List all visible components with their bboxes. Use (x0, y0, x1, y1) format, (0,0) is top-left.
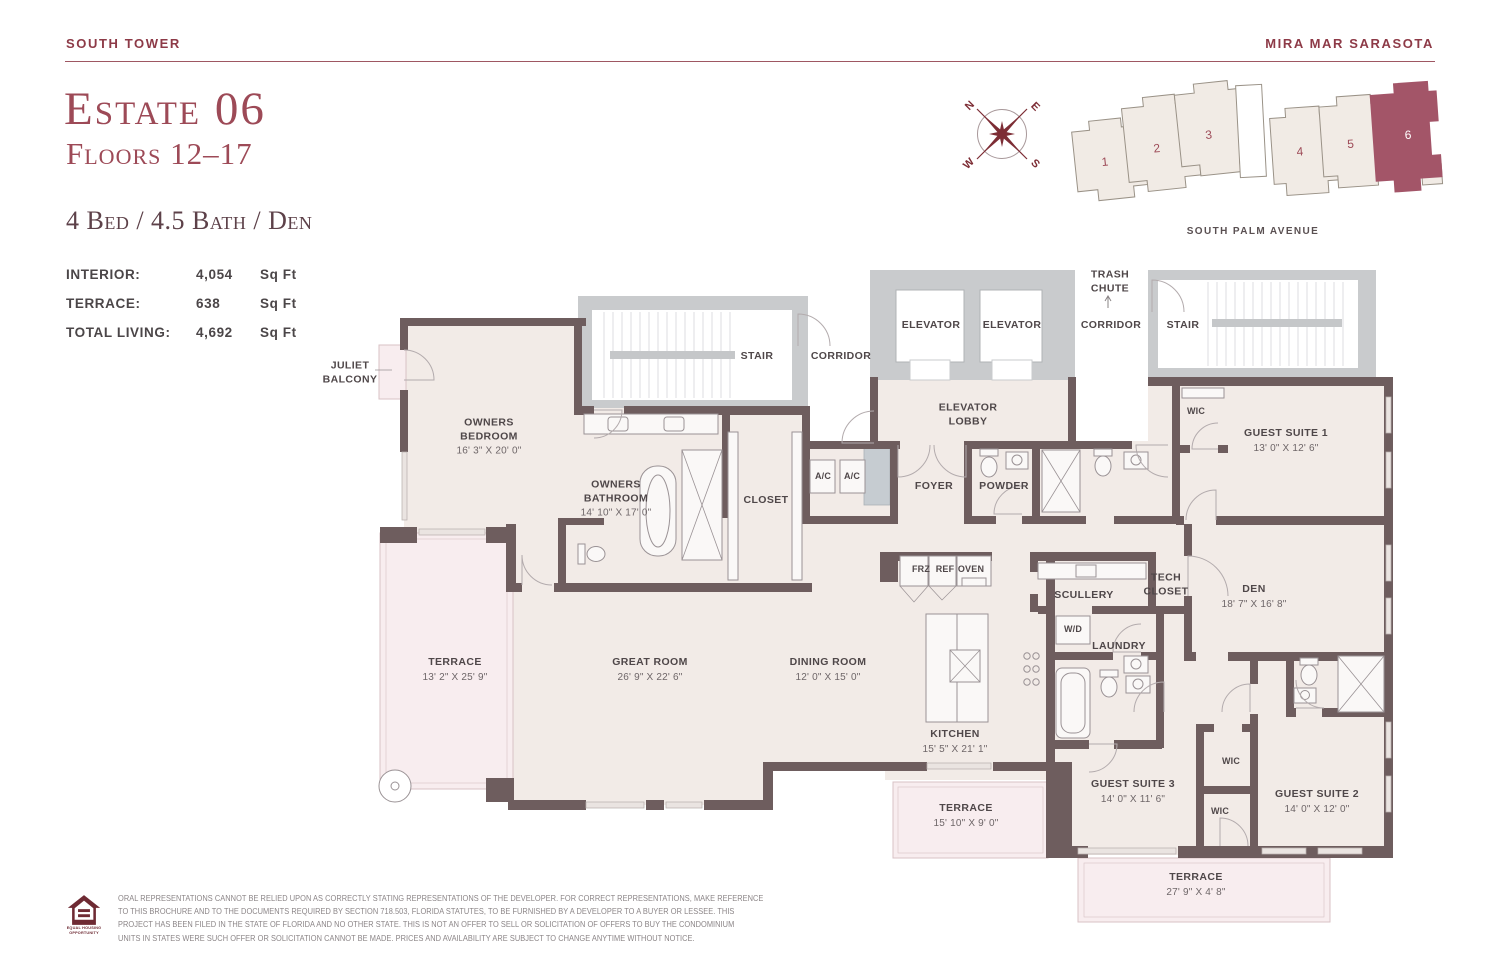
room-name: STAIR (1167, 319, 1200, 333)
room-name: WIC (1222, 756, 1240, 768)
room-name: CLOSET (744, 494, 789, 508)
plan-label-kitchen: KITCHEN15' 5" X 21' 1" (922, 728, 987, 756)
plan-label-owners-bathroom: OWNERS BATHROOM14' 10" X 17' 0" (581, 478, 652, 519)
room-dimensions: 14' 0" X 12' 0" (1275, 803, 1359, 816)
plan-label-den: DEN18' 7" X 16' 8" (1221, 583, 1286, 611)
room-dimensions: 15' 10" X 9' 0" (933, 817, 998, 830)
plan-label-foyer: FOYER (915, 480, 953, 494)
room-name: JULIET BALCONY (323, 359, 378, 386)
plan-label-wic-gs1: WIC (1187, 406, 1205, 418)
room-dimensions: 12' 0" X 15' 0" (790, 671, 867, 684)
logo-caption-line2: OPPORTUNITY (64, 931, 104, 936)
room-dimensions: 18' 7" X 16' 8" (1221, 598, 1286, 611)
plan-label-elevator-1: ELEVATOR (902, 319, 961, 333)
plan-label-ac-1: A/C (815, 471, 831, 483)
plan-label-terrace-bottom: TERRACE27' 9" X 4' 8" (1166, 871, 1225, 899)
equal-housing-logo: EQUAL HOUSING OPPORTUNITY (64, 894, 104, 937)
room-name: FRZ (912, 564, 930, 576)
plan-label-guest-suite-2: GUEST SUITE 214' 0" X 12' 0" (1275, 788, 1359, 816)
plan-label-ref: REF (936, 564, 955, 576)
plan-label-wic-1: WIC (1222, 756, 1240, 768)
room-name: GREAT ROOM (612, 656, 688, 670)
room-name: LAUNDRY (1092, 640, 1146, 654)
legal-disclaimer: ORAL REPRESENTATIONS CANNOT BE RELIED UP… (118, 892, 720, 945)
room-name: SCULLERY (1054, 589, 1113, 603)
disclaimer-line: TO THIS BROCHURE AND TO THE DOCUMENTS RE… (118, 905, 720, 918)
disclaimer-line: ORAL REPRESENTATIONS CANNOT BE RELIED UP… (118, 892, 720, 905)
plan-label-juliet-balcony: JULIET BALCONY (323, 359, 378, 386)
plan-label-guest-suite-3: GUEST SUITE 314' 0" X 11' 6" (1091, 778, 1175, 806)
room-name: A/C (815, 471, 831, 483)
disclaimer-line: PROJECT HAS BEEN FILED IN THE STATE OF F… (118, 918, 720, 931)
room-name: POWDER (979, 480, 1029, 494)
plan-label-dining-room: DINING ROOM12' 0" X 15' 0" (790, 656, 867, 684)
room-name: CORRIDOR (1081, 319, 1141, 333)
plan-label-wd: W/D (1064, 624, 1082, 636)
room-name: W/D (1064, 624, 1082, 636)
plan-label-owners-bedroom: OWNERS BEDROOM16' 3" X 20' 0" (456, 416, 521, 457)
plan-label-corridor-left: CORRIDOR (811, 350, 871, 364)
room-dimensions: 16' 3" X 20' 0" (456, 445, 521, 458)
plan-label-elevator-lobby: ELEVATOR LOBBY (939, 401, 998, 428)
room-dimensions: 26' 9" X 22' 6" (612, 671, 688, 684)
plan-label-terrace-kitchen: TERRACE15' 10" X 9' 0" (933, 802, 998, 830)
room-name: OWNERS BATHROOM (581, 478, 652, 505)
room-dimensions: 13' 0" X 12' 6" (1244, 442, 1328, 455)
disclaimer-line: UNITS IN STATES WERE SUCH OFFER OR SOLIC… (118, 932, 720, 945)
plan-label-terrace-left: TERRACE13' 2" X 25' 9" (422, 656, 487, 684)
plan-label-great-room: GREAT ROOM26' 9" X 22' 6" (612, 656, 688, 684)
room-name: STAIR (741, 350, 774, 364)
room-name: CORRIDOR (811, 350, 871, 364)
plan-label-guest-suite-1: GUEST SUITE 113' 0" X 12' 6" (1244, 427, 1328, 455)
plan-label-laundry: LAUNDRY (1092, 640, 1146, 654)
room-name: GUEST SUITE 1 (1244, 427, 1328, 441)
room-name: TRASH CHUTE (1091, 268, 1129, 295)
room-name: ELEVATOR (902, 319, 961, 333)
equal-housing-house-icon (67, 894, 101, 926)
room-name: ELEVATOR (983, 319, 1042, 333)
plan-label-ac-2: A/C (844, 471, 860, 483)
room-name: REF (936, 564, 955, 576)
room-name: OWNERS BEDROOM (456, 416, 521, 443)
room-dimensions: 15' 5" X 21' 1" (922, 743, 987, 756)
plan-label-powder: POWDER (979, 480, 1029, 494)
floor-plan (0, 0, 1500, 971)
plan-label-elevator-2: ELEVATOR (983, 319, 1042, 333)
room-name: ELEVATOR LOBBY (939, 401, 998, 428)
brochure-page: SOUTH TOWER MIRA MAR SARASOTA Estate 06 … (0, 0, 1500, 971)
room-name: TERRACE (1166, 871, 1225, 885)
plan-label-stair-left: STAIR (741, 350, 774, 364)
plan-label-wic-2: WIC (1211, 806, 1229, 818)
room-name: DEN (1221, 583, 1286, 597)
room-name: A/C (844, 471, 860, 483)
room-name: DINING ROOM (790, 656, 867, 670)
plan-label-frz: FRZ (912, 564, 930, 576)
room-name: GUEST SUITE 2 (1275, 788, 1359, 802)
plan-label-closet: CLOSET (744, 494, 789, 508)
room-name: WIC (1211, 806, 1229, 818)
plan-label-oven: OVEN (958, 564, 984, 576)
room-name: TECH CLOSET (1144, 571, 1189, 598)
room-name: WIC (1187, 406, 1205, 418)
room-dimensions: 14' 10" X 17' 0" (581, 507, 652, 520)
room-dimensions: 27' 9" X 4' 8" (1166, 886, 1225, 899)
room-name: TERRACE (422, 656, 487, 670)
plan-label-scullery: SCULLERY (1054, 589, 1113, 603)
room-dimensions: 13' 2" X 25' 9" (422, 671, 487, 684)
plan-label-tech-closet: TECH CLOSET (1144, 571, 1189, 598)
plan-label-trash-chute: TRASH CHUTE (1091, 268, 1129, 295)
room-name: GUEST SUITE 3 (1091, 778, 1175, 792)
plan-label-corridor-right: CORRIDOR (1081, 319, 1141, 333)
room-dimensions: 14' 0" X 11' 6" (1091, 793, 1175, 806)
room-name: OVEN (958, 564, 984, 576)
room-name: TERRACE (933, 802, 998, 816)
room-name: KITCHEN (922, 728, 987, 742)
plan-label-stair-right: STAIR (1167, 319, 1200, 333)
room-name: FOYER (915, 480, 953, 494)
